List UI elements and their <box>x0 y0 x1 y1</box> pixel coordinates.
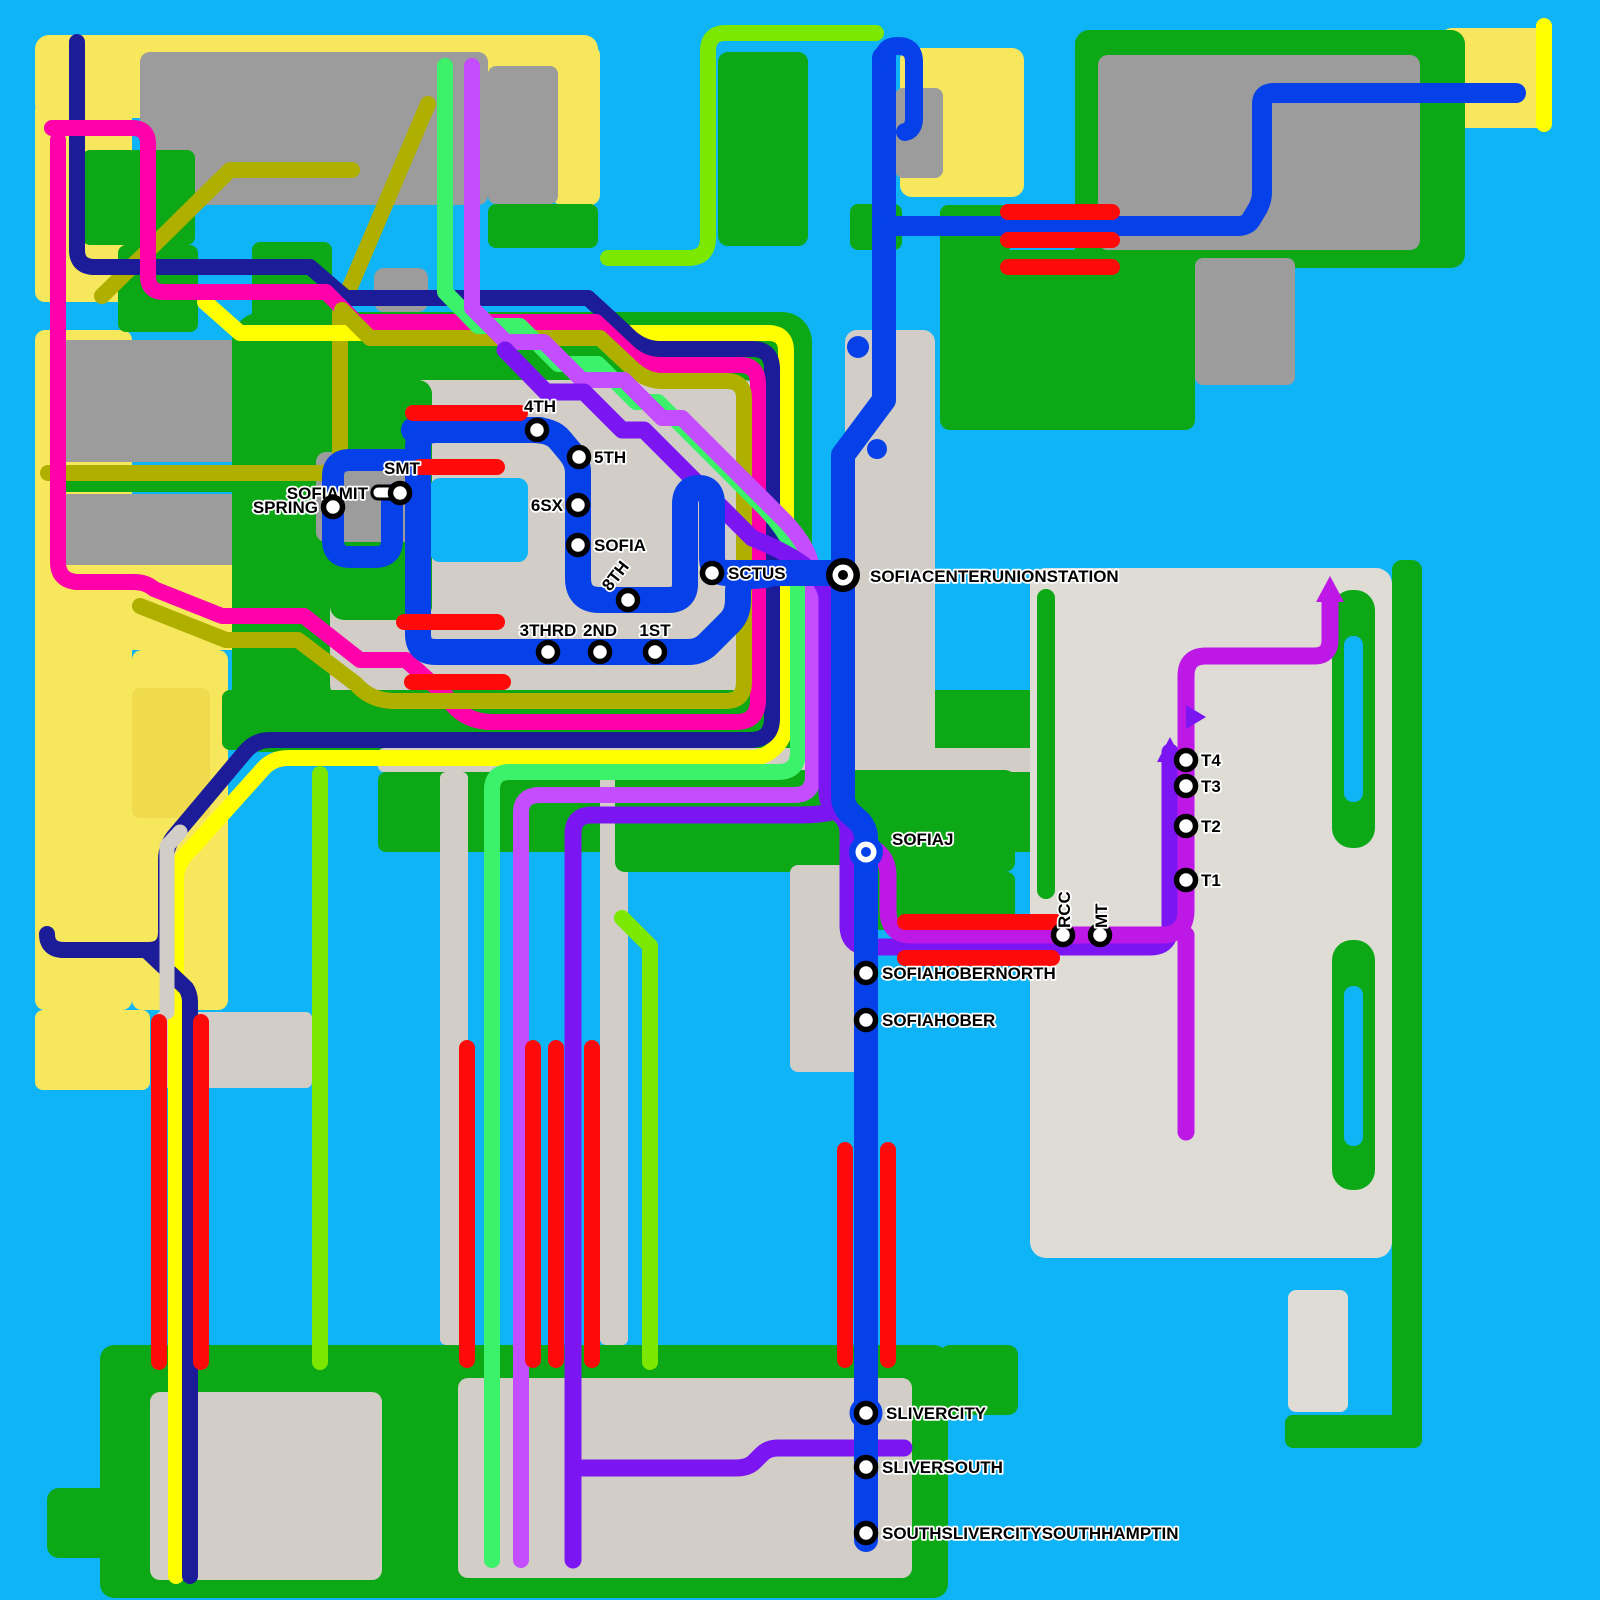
transit-map: SOFIAMIT4TH5TH6SXSOFIA8THSCTUS3THRD2ND1S… <box>0 0 1600 1600</box>
landmass-yellow-7 <box>552 45 600 205</box>
landmass-green-43 <box>1392 560 1422 1448</box>
landmass-water-47 <box>1344 636 1363 802</box>
station-marker-spring[interactable] <box>324 498 343 517</box>
station-marker-t3[interactable] <box>1177 777 1196 796</box>
station-marker-6sx[interactable] <box>569 496 588 515</box>
station-label-5th: 5TH <box>594 448 626 467</box>
station-label-southslivercitysouthhamptin: SOUTHSLIVERCITYSOUTHHAMPTIN <box>882 1524 1179 1543</box>
landmass-green-20 <box>718 52 808 246</box>
station-label-sofia: SOFIA <box>594 536 646 555</box>
blue-isolated-dot <box>867 439 887 459</box>
station-label-smt: SMT <box>384 459 421 478</box>
station-label-4th: 4TH <box>524 397 556 416</box>
station-label-sofiahober: SOFIAHOBER <box>882 1011 995 1030</box>
station-marker-2nd[interactable] <box>591 643 610 662</box>
landmass-green-52 <box>47 1488 122 1558</box>
station-marker-southslivercitysouthhamptin[interactable] <box>857 1524 876 1543</box>
station-marker-3thrd[interactable] <box>539 643 558 662</box>
station-marker-t1[interactable] <box>1177 871 1196 890</box>
station-marker-5th[interactable] <box>570 448 589 467</box>
landmass-green-26 <box>940 250 1195 430</box>
station-marker-8th[interactable] <box>619 591 638 610</box>
station-label-6sx: 6SX <box>531 496 564 515</box>
landmass-gray-11 <box>488 66 558 204</box>
station-label-sofiacenterunionstation: SOFIACENTERUNIONSTATION <box>870 567 1119 586</box>
blue-terminal-dot <box>847 336 869 358</box>
station-label-rcc: RCC <box>1055 891 1074 928</box>
station-marker-t4[interactable] <box>1177 751 1196 770</box>
station-marker-sofiahobernorth[interactable] <box>857 964 876 983</box>
landmass-yellow-6 <box>35 1010 150 1090</box>
station-label-slivercity: SLIVERCITY <box>886 1404 987 1423</box>
station-marker-sctus[interactable] <box>703 564 722 583</box>
landmass-water-32 <box>430 478 528 562</box>
station-label-2nd: 2ND <box>583 621 617 640</box>
station-label-sliversouth: SLIVERSOUTH <box>882 1458 1003 1477</box>
station-marker-t2[interactable] <box>1177 817 1196 836</box>
station-label-t2: T2 <box>1201 817 1221 836</box>
station-label-spring: SPRING <box>253 498 318 517</box>
landmass-green-21 <box>488 204 598 248</box>
station-marker-dot-sofiaj <box>861 847 871 857</box>
station-marker-sofia[interactable] <box>569 536 588 555</box>
landmass-water-49 <box>1344 986 1363 1146</box>
station-label-mt: MT <box>1092 903 1111 928</box>
station-marker-sofiahober[interactable] <box>857 1011 876 1030</box>
station-label-t3: T3 <box>1201 777 1221 796</box>
station-label-t4: T4 <box>1201 751 1221 770</box>
landmass-green-44 <box>1285 1415 1422 1448</box>
station-marker-sliversouth[interactable] <box>857 1458 876 1477</box>
landmass-gray-27 <box>1195 258 1295 385</box>
station-marker-dot-sofiacenterunionstation <box>838 570 848 580</box>
station-label-1st: 1ST <box>639 621 671 640</box>
station-label-t1: T1 <box>1201 871 1221 890</box>
transit-map-stage: SOFIAMIT4TH5TH6SXSOFIA8THSCTUS3THRD2ND1S… <box>0 0 1600 1600</box>
station-label-sctus: SCTUS <box>728 564 786 583</box>
station-label-sofiahobernorth: SOFIAHOBERNORTH <box>882 964 1056 983</box>
station-marker-smt[interactable] <box>391 484 410 503</box>
station-marker-4th[interactable] <box>528 421 547 440</box>
landmass-lightgray2-45 <box>1288 1290 1348 1412</box>
station-marker-1st[interactable] <box>646 643 665 662</box>
station-label-3thrd: 3THRD <box>520 621 577 640</box>
station-label-sofiaj: SOFIAJ <box>892 830 953 849</box>
station-marker-slivercity[interactable] <box>857 1404 876 1423</box>
